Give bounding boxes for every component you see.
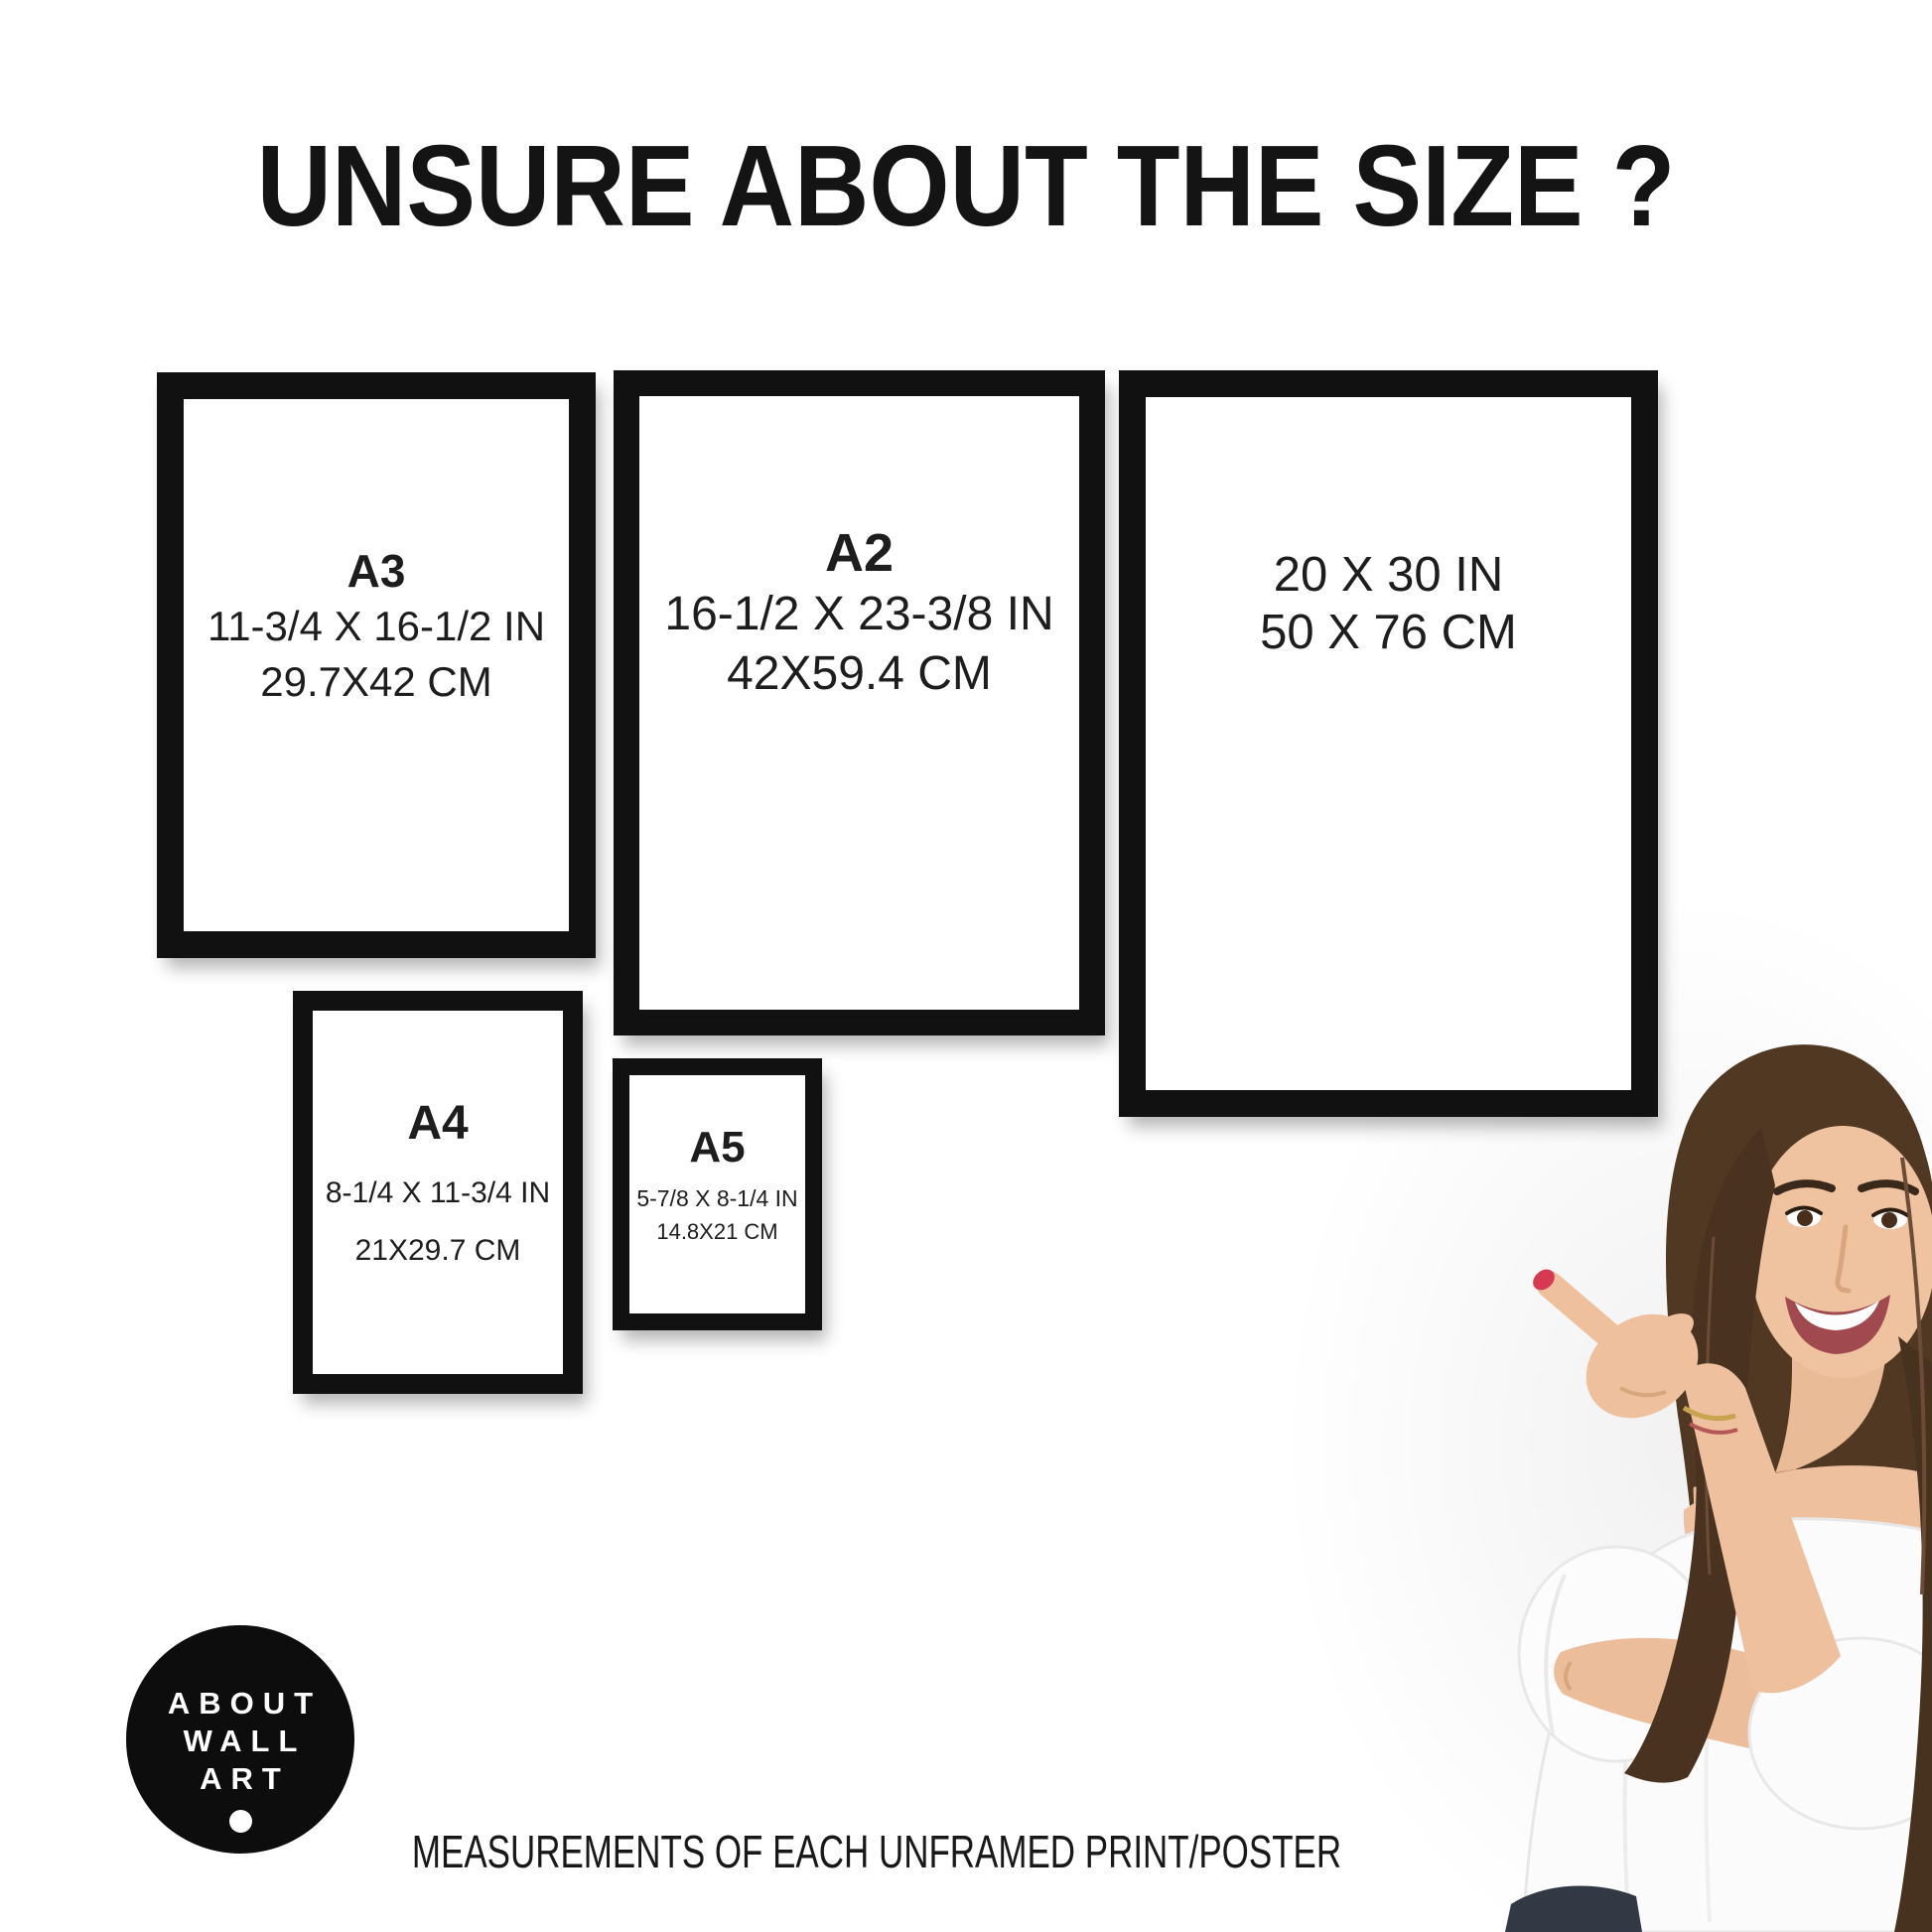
frame-a3-text: A3 11-3/4 X 16-1/2 IN 29.7X42 CM [184, 543, 569, 710]
footer-caption: MEASUREMENTS OF EACH UNFRAMED PRINT/POST… [210, 1825, 1543, 1878]
size-cm: 29.7X42 CM [184, 654, 569, 710]
logo-line-2: WALL [126, 1723, 354, 1760]
logo-line-3: ART [126, 1760, 354, 1798]
size-cm: 14.8X21 CM [629, 1217, 805, 1247]
size-label: A5 [629, 1122, 805, 1173]
size-inches: 8-1/4 X 11-3/4 IN [313, 1174, 563, 1212]
frame-a5: A5 5-7/8 X 8-1/4 IN 14.8X21 CM [613, 1058, 822, 1330]
frame-a4: A4 8-1/4 X 11-3/4 IN 21X29.7 CM [293, 991, 583, 1394]
brand-logo: ABOUT WALL ART [126, 1625, 354, 1854]
size-cm: 21X29.7 CM [313, 1232, 563, 1270]
frame-a5-text: A5 5-7/8 X 8-1/4 IN 14.8X21 CM [629, 1122, 805, 1247]
frame-a2: A2 16-1/2 X 23-3/8 IN 42X59.4 CM [614, 370, 1105, 1035]
logo-line-1: ABOUT [126, 1685, 354, 1723]
size-inches: 20 X 30 IN [1146, 546, 1631, 604]
frame-a2-text: A2 16-1/2 X 23-3/8 IN 42X59.4 CM [639, 521, 1079, 704]
page-title: UNSURE ABOUT THE SIZE ? [96, 119, 1835, 252]
size-label: A4 [313, 1095, 563, 1153]
size-inches: 16-1/2 X 23-3/8 IN [639, 585, 1079, 644]
size-inches: 11-3/4 X 16-1/2 IN [184, 599, 569, 654]
model-photo [1386, 1038, 1932, 1932]
index-finger [1550, 1285, 1626, 1350]
size-label: A2 [639, 521, 1079, 585]
size-inches: 5-7/8 X 8-1/4 IN [629, 1183, 805, 1213]
size-cm: 50 X 76 CM [1146, 604, 1631, 661]
size-label: A3 [184, 543, 569, 599]
frame-a4-text: A4 8-1/4 X 11-3/4 IN 21X29.7 CM [313, 1095, 563, 1270]
frame-20x30-text: 20 X 30 IN 50 X 76 CM [1146, 546, 1631, 661]
frame-20x30: 20 X 30 IN 50 X 76 CM [1119, 370, 1658, 1117]
size-cm: 42X59.4 CM [639, 644, 1079, 704]
frame-a3: A3 11-3/4 X 16-1/2 IN 29.7X42 CM [157, 372, 596, 958]
